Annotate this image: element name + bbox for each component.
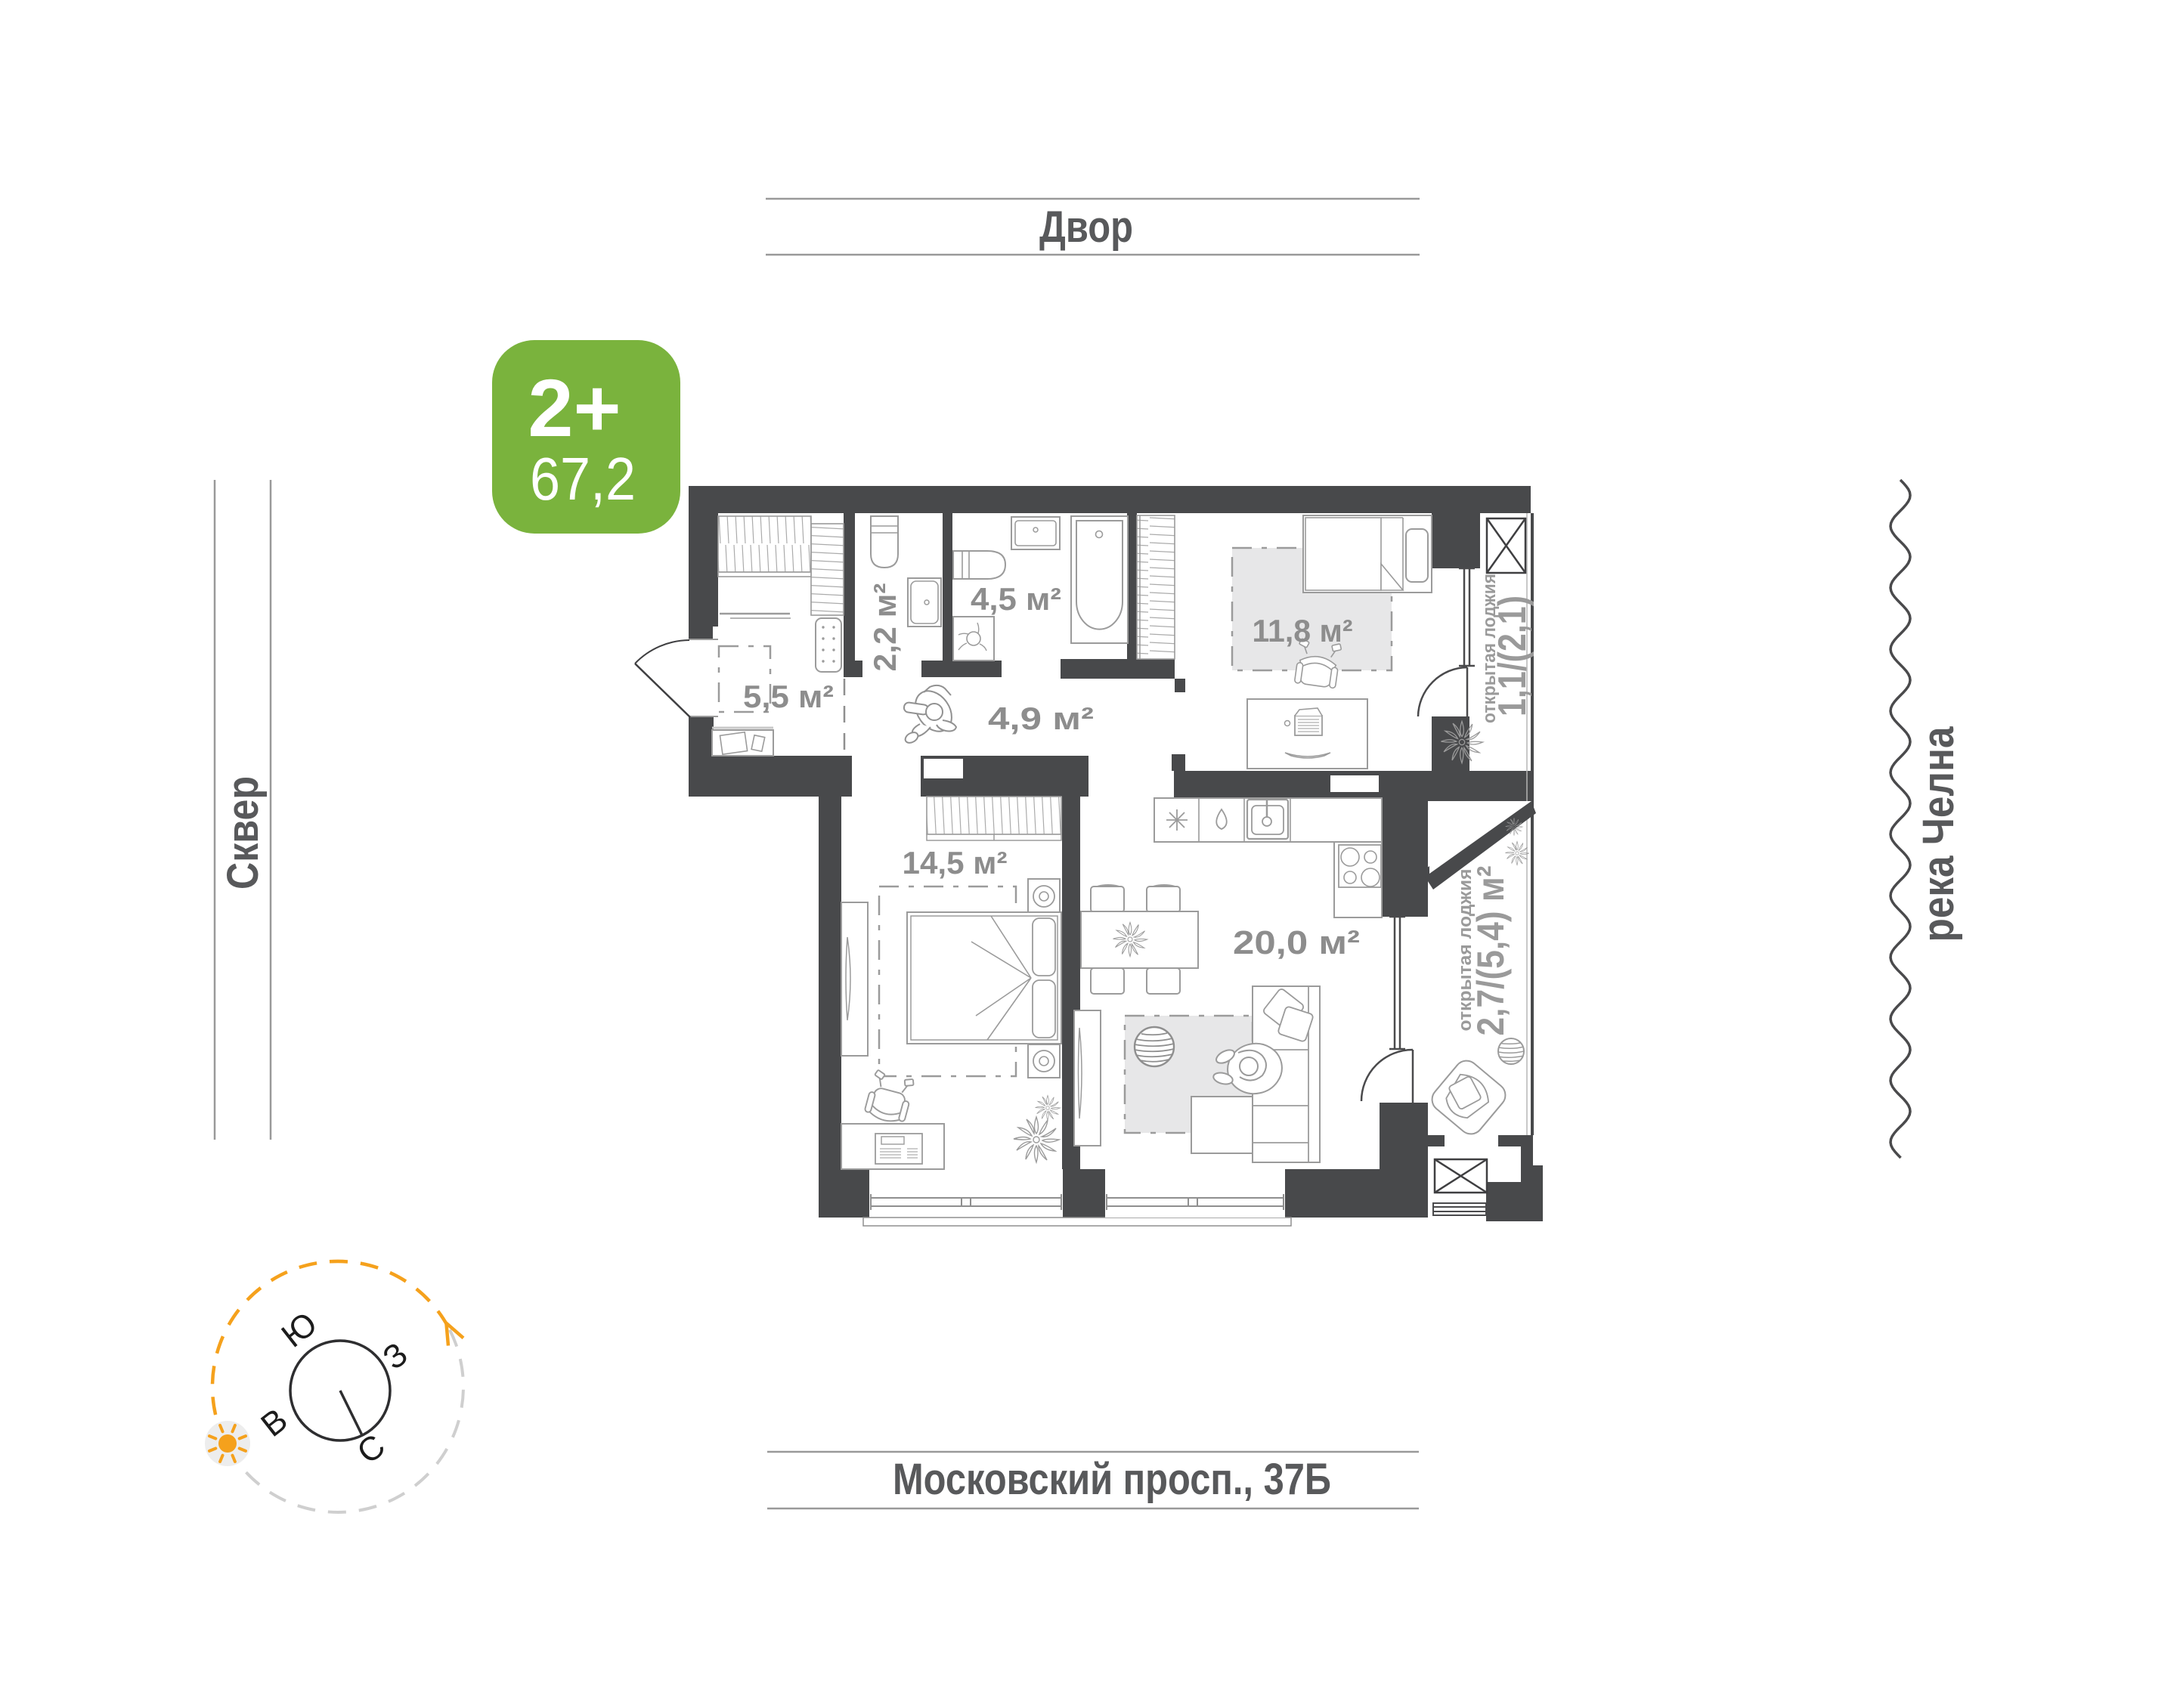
svg-text:река Челна: река Челна — [1914, 726, 1963, 942]
svg-text:4,9 м²: 4,9 м² — [988, 701, 1094, 736]
svg-text:14,5 м²: 14,5 м² — [903, 845, 1008, 880]
svg-text:67,2: 67,2 — [530, 445, 636, 512]
svg-text:Сквер: Сквер — [218, 776, 268, 890]
svg-text:Московский просп., 37Б: Московский просп., 37Б — [893, 1455, 1331, 1504]
svg-text:2,2 м²: 2,2 м² — [867, 583, 903, 672]
svg-text:11,8 м²: 11,8 м² — [1253, 613, 1353, 648]
svg-text:5,5 м²: 5,5 м² — [743, 679, 834, 714]
svg-text:1,1/(2,1): 1,1/(2,1) — [1491, 596, 1534, 716]
svg-text:2+: 2+ — [528, 362, 621, 453]
svg-text:Двор: Двор — [1039, 203, 1133, 252]
svg-text:20,0 м²: 20,0 м² — [1233, 924, 1360, 961]
svg-text:4,5 м²: 4,5 м² — [971, 581, 1061, 617]
svg-text:2,7/(5,4) м²: 2,7/(5,4) м² — [1469, 866, 1512, 1036]
